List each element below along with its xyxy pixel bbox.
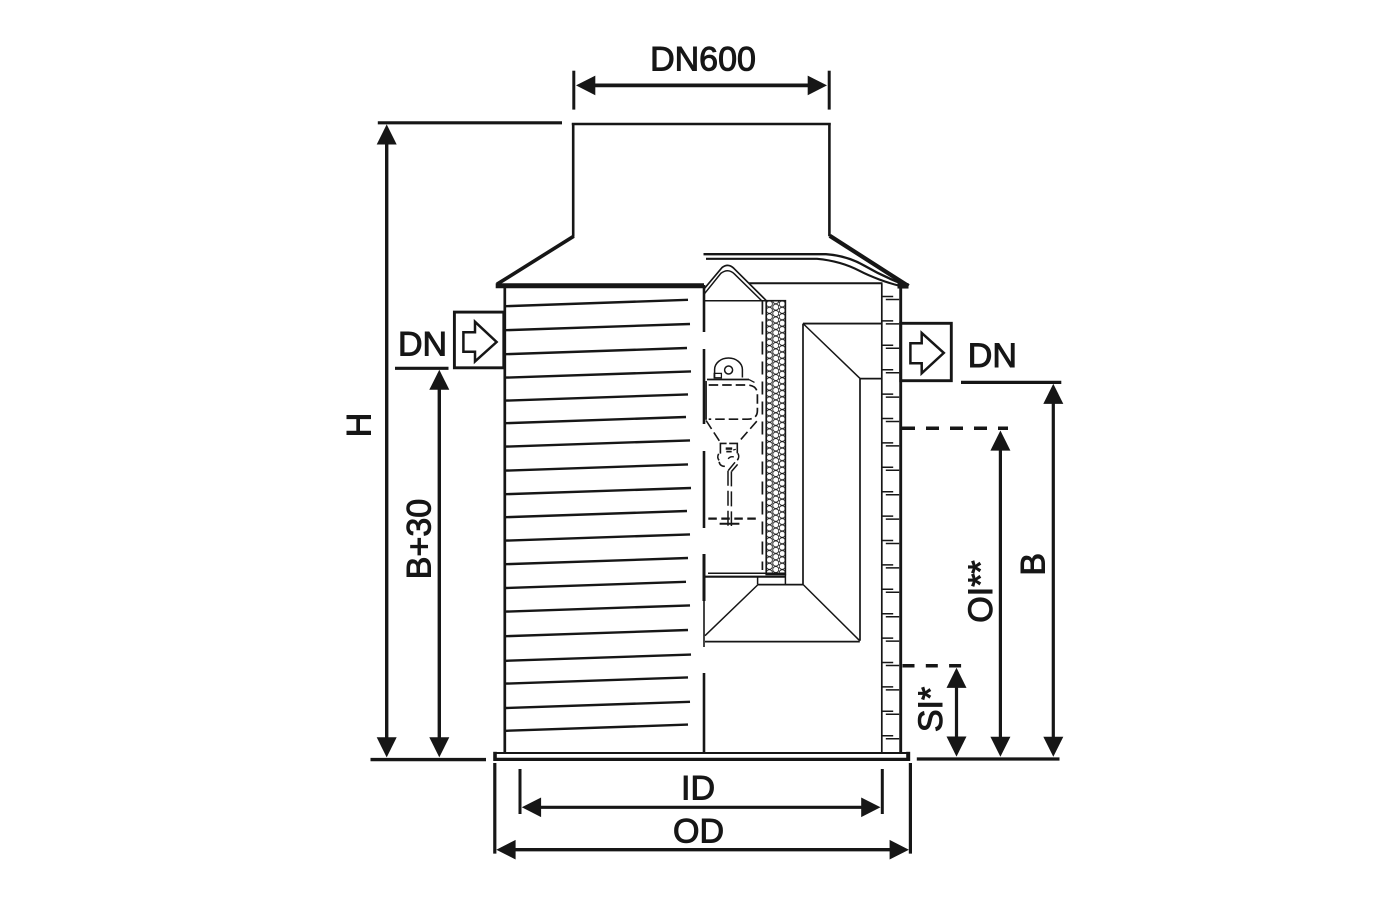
svg-text:DN600: DN600	[650, 41, 756, 79]
svg-text:OI**: OI**	[962, 560, 1000, 622]
svg-text:H: H	[341, 413, 379, 438]
svg-text:SI*: SI*	[912, 687, 950, 732]
svg-text:DN: DN	[398, 326, 447, 364]
svg-text:DN: DN	[968, 337, 1017, 375]
svg-text:OD: OD	[673, 813, 724, 851]
svg-text:B: B	[1015, 553, 1053, 576]
svg-text:B+30: B+30	[401, 499, 439, 579]
svg-text:ID: ID	[681, 769, 715, 807]
